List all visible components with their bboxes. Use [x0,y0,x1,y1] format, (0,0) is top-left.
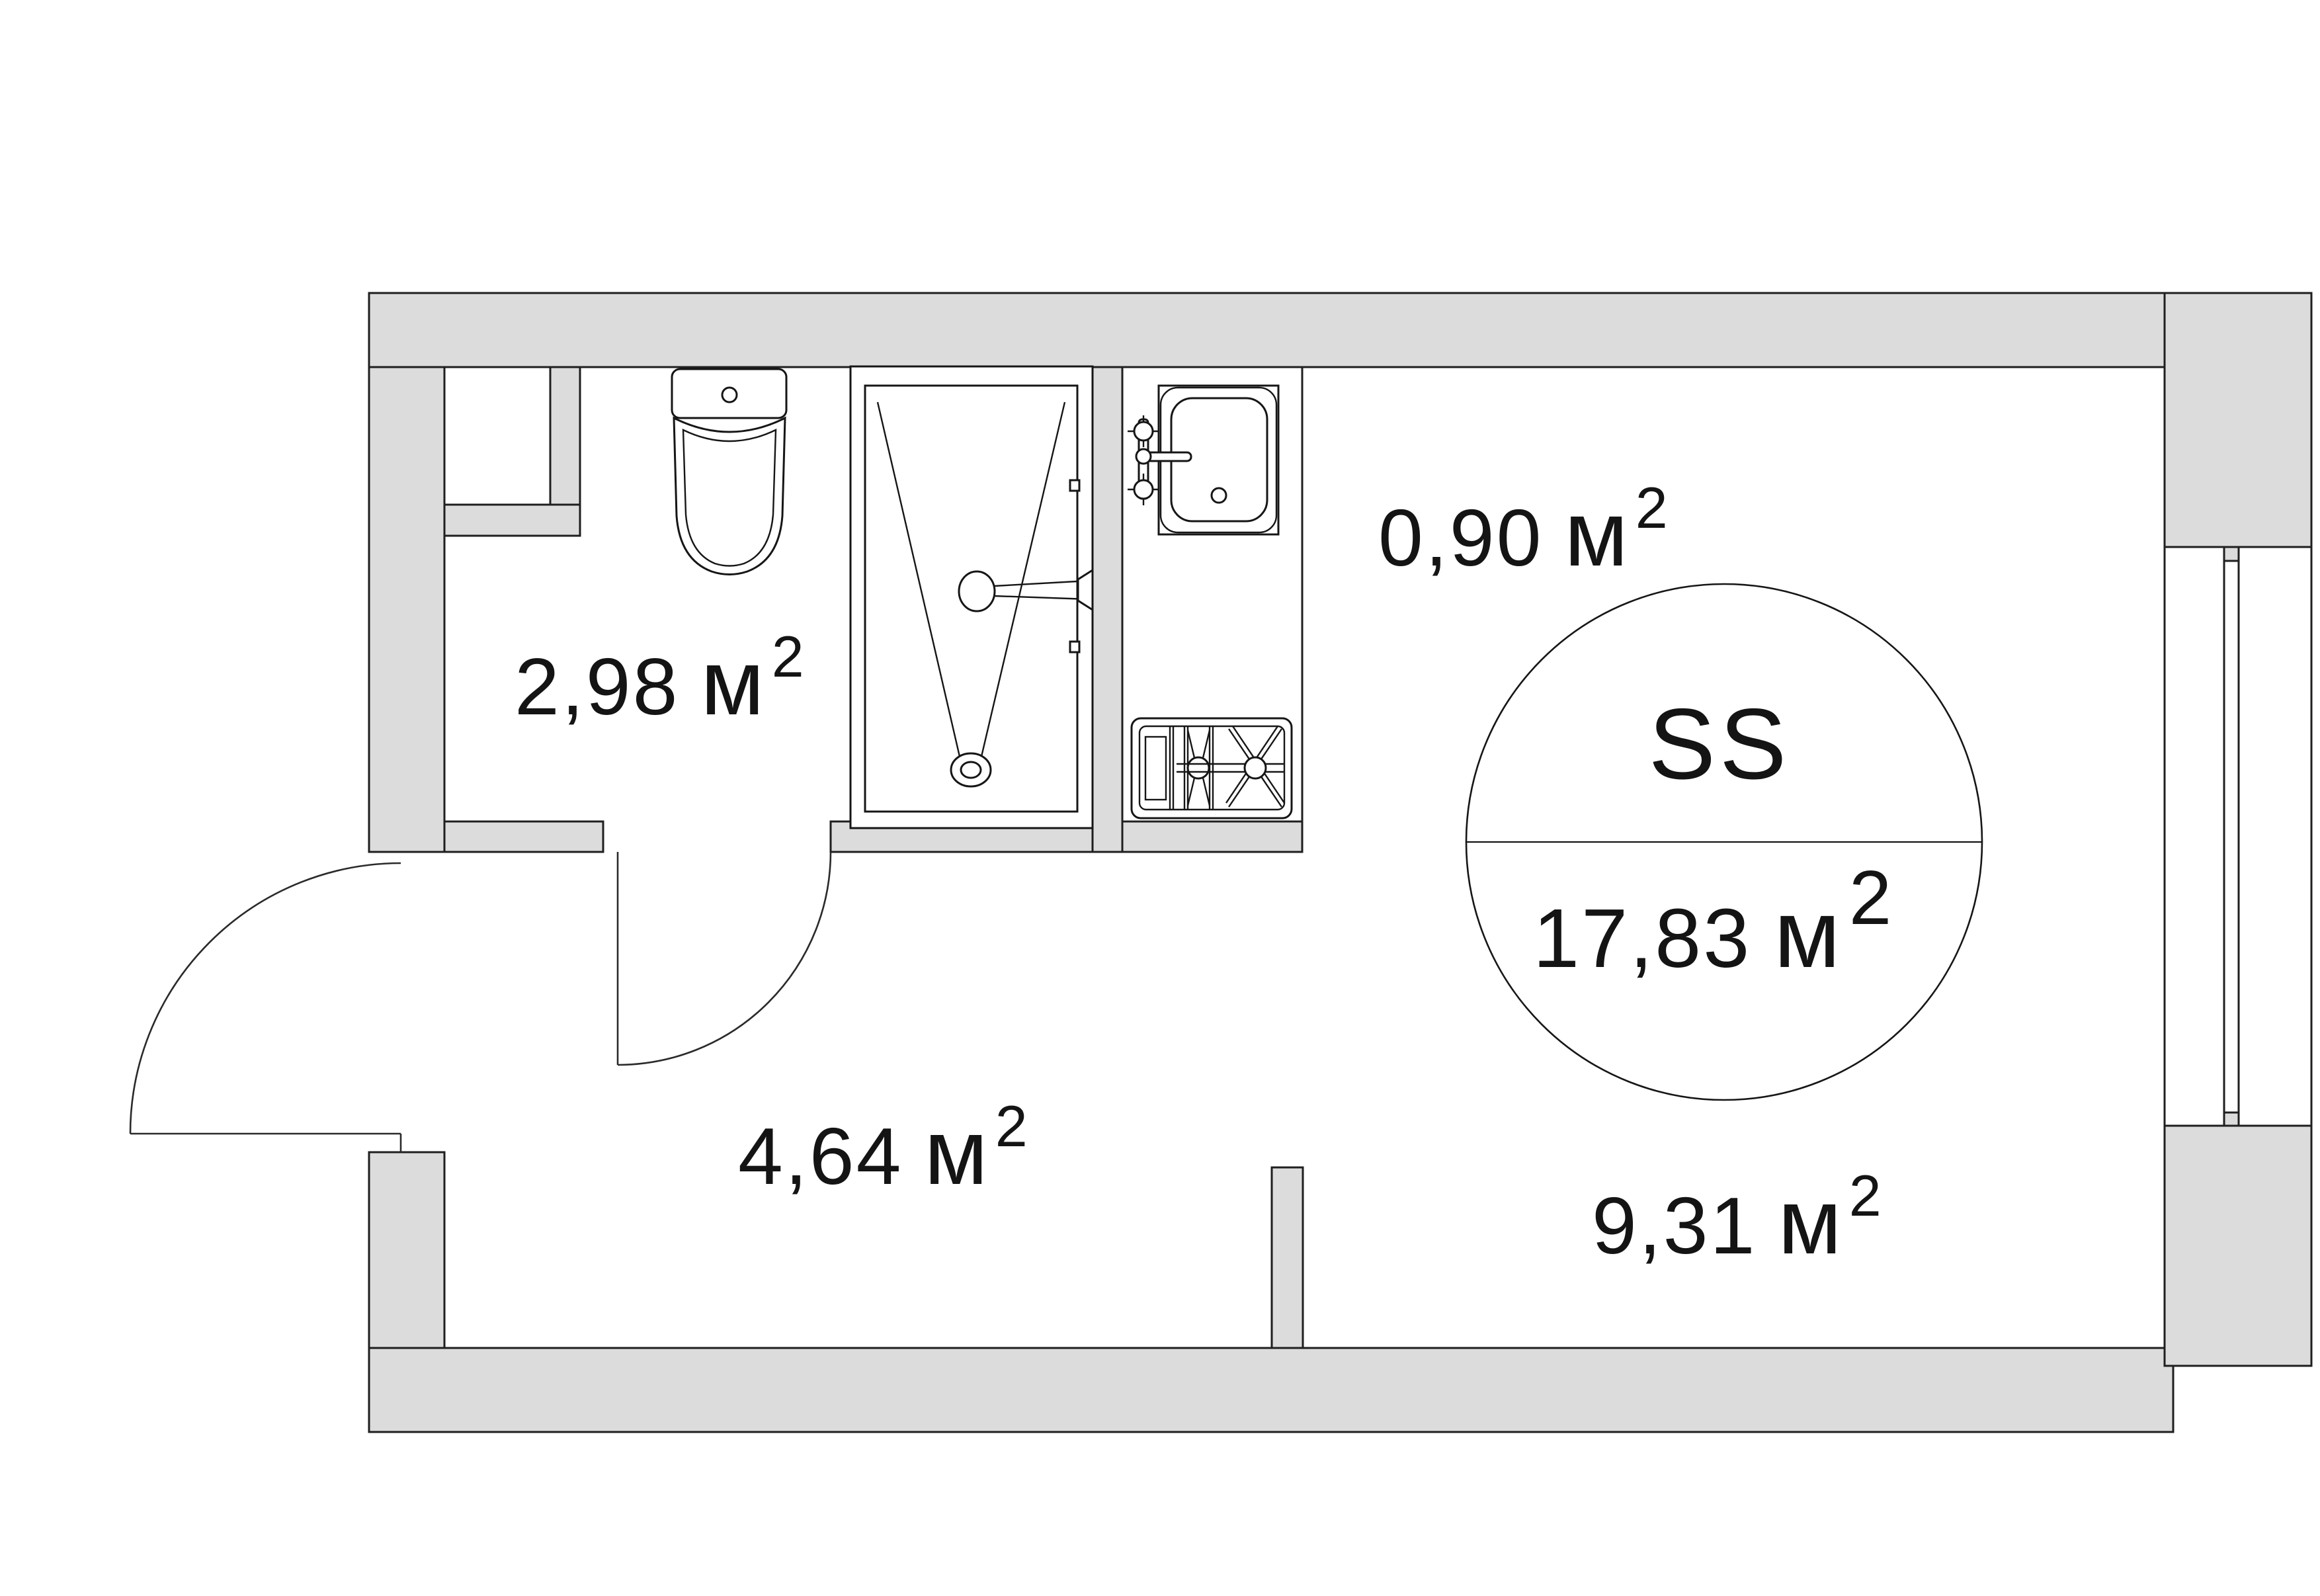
bathroom-door-swing-arc [618,852,831,1065]
shaft-wall-horizontal [444,505,580,536]
outer-wall-left-lower [369,1152,444,1348]
window-bay-top-block [2165,293,2311,547]
outer-wall-bottom [369,1348,2173,1432]
window-frame-cap-top [2224,547,2239,561]
sink-drain [1212,488,1226,503]
kitchen-niche-area-label: 0,90м2 [1378,475,1670,585]
living-room-area-label: 9,31м2 [1592,1163,1884,1273]
partition-bathroom-hallway [444,821,603,852]
floor-plan-drawing: SS 17,83м2 2,98м2 0,90м2 4,64м2 9,31м2 [0,0,2320,1596]
wall-shower-kitchen [1093,367,1122,852]
hallway-area-label: 4,64м2 [738,1093,1030,1204]
toilet-flush-button [722,388,737,402]
bathroom-door [618,852,831,1065]
shower-door-hinge-top [1070,480,1079,491]
window-bay-bottom-block [2165,1126,2311,1366]
walls [369,293,2311,1432]
entrance-door [130,863,401,1152]
kitchen-sink-fixture [1128,386,1278,534]
floor-plan-page: SS 17,83м2 2,98м2 0,90м2 4,64м2 9,31м2 [0,0,2320,1596]
stove-fixture [1132,718,1292,818]
faucet-handle-top [1128,415,1159,447]
stove-outline [1132,718,1292,818]
unit-type-label: SS [1649,688,1791,800]
faucet-pivot [1136,449,1151,464]
toilet-fixture [672,369,786,575]
outer-wall-top [369,293,2165,367]
shower-door-hinge-bottom [1070,642,1079,652]
unit-area-value: 17,83 [1533,892,1751,985]
bathroom-area-label: 2,98м2 [515,624,806,734]
living-room-wall-stub [1272,1167,1303,1348]
outer-wall-left-upper [369,367,444,852]
shower-fixture [850,366,1093,828]
shower-head [959,571,995,611]
window-frame-cap-bottom [2224,1113,2239,1126]
unit-badge: SS 17,83м2 [1466,584,1982,1100]
entrance-door-swing-arc [130,863,401,1134]
unit-area-unit: м [1774,880,1842,987]
faucet-handle-bottom [1128,474,1159,505]
shower-drain-inner [961,762,981,778]
unit-area-superscript: 2 [1849,855,1894,941]
